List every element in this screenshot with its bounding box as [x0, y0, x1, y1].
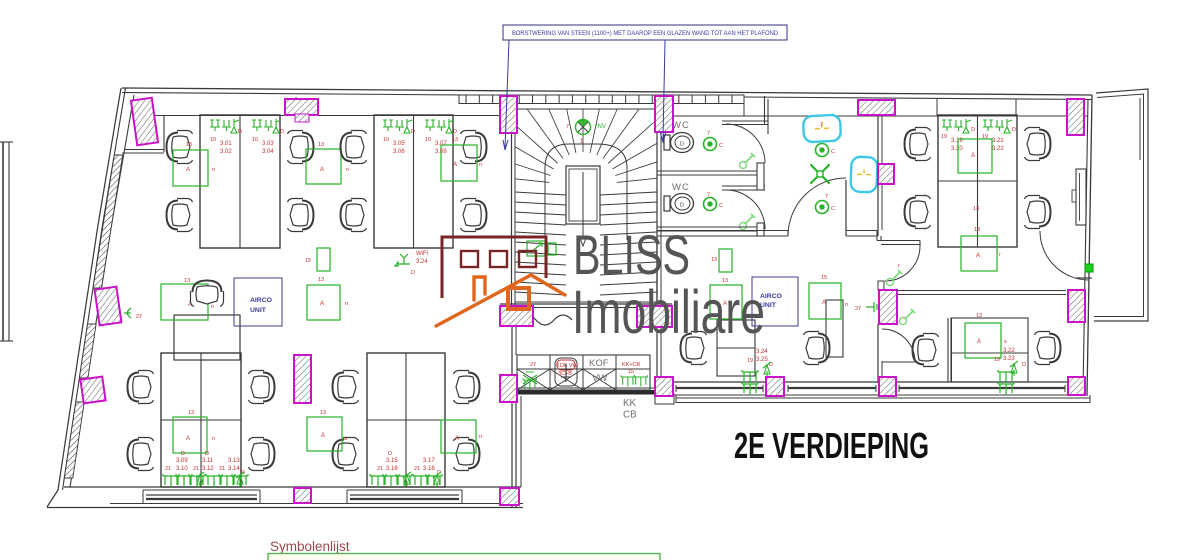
- svg-text:3.14: 3.14: [228, 466, 240, 472]
- svg-text:3.06: 3.06: [393, 149, 405, 155]
- svg-text:D: D: [411, 270, 415, 276]
- svg-text:7: 7: [707, 192, 710, 198]
- svg-text:Symbolenlijst: Symbolenlijst: [270, 539, 350, 554]
- svg-text:3.24: 3.24: [756, 349, 768, 355]
- svg-text:13: 13: [452, 137, 458, 143]
- svg-text:3.17: 3.17: [423, 458, 435, 464]
- svg-text:19: 19: [747, 358, 753, 364]
- svg-text:3.11: 3.11: [202, 458, 214, 464]
- svg-text:10: 10: [210, 137, 216, 143]
- svg-text:3.07: 3.07: [435, 141, 447, 147]
- svg-text:D: D: [205, 451, 209, 457]
- svg-text:n: n: [212, 436, 215, 442]
- svg-text:KOF VW: KOF VW: [556, 363, 579, 369]
- svg-text:3.25: 3.25: [756, 357, 768, 363]
- svg-text:3.01: 3.01: [220, 141, 232, 147]
- svg-text:BORSTWERING VAN STEEN (1100+): BORSTWERING VAN STEEN (1100+) MET DAAROP…: [512, 30, 778, 37]
- svg-text:KK: KK: [623, 398, 637, 409]
- svg-text:D: D: [680, 142, 684, 148]
- svg-text:3.21: 3.21: [992, 138, 1004, 144]
- svg-text:7: 7: [825, 194, 828, 200]
- svg-text:3.18: 3.18: [423, 466, 435, 472]
- svg-text:WiFi: WiFi: [416, 251, 428, 257]
- svg-text:r: r: [999, 252, 1001, 258]
- svg-text:A: A: [977, 339, 981, 345]
- svg-text:D: D: [453, 129, 457, 135]
- svg-text:A: A: [320, 301, 324, 307]
- svg-text:10: 10: [252, 137, 258, 143]
- svg-text:7: 7: [707, 131, 710, 137]
- svg-text:VW: VW: [592, 373, 607, 384]
- svg-text:n: n: [212, 167, 215, 173]
- svg-text:r: r: [898, 263, 900, 269]
- svg-text:D: D: [238, 129, 242, 135]
- svg-text:7: 7: [566, 124, 569, 130]
- svg-text:A: A: [321, 433, 325, 439]
- svg-text:n: n: [479, 434, 482, 440]
- svg-text:21: 21: [377, 466, 383, 472]
- svg-text:AIRCO: AIRCO: [250, 297, 272, 304]
- svg-text:A: A: [186, 167, 190, 173]
- svg-text:15: 15: [821, 275, 827, 281]
- svg-text:D: D: [1012, 127, 1016, 133]
- svg-text:D: D: [971, 127, 975, 133]
- svg-text:D: D: [1022, 362, 1026, 368]
- svg-text:2E VERDIEPING: 2E VERDIEPING: [734, 425, 929, 466]
- svg-text:D: D: [280, 129, 284, 135]
- svg-text:13: 13: [188, 410, 194, 416]
- svg-text:19: 19: [941, 134, 947, 140]
- svg-text:7: 7: [820, 122, 823, 128]
- svg-text:n: n: [211, 304, 214, 310]
- svg-text:3.12: 3.12: [202, 466, 214, 472]
- svg-text:n: n: [479, 162, 482, 168]
- svg-text:3C+B: 3C+B: [558, 371, 572, 377]
- svg-text:13: 13: [974, 227, 980, 233]
- svg-text:21: 21: [414, 466, 420, 472]
- svg-text:15: 15: [305, 258, 311, 264]
- svg-text:13: 13: [318, 277, 324, 283]
- svg-text:A: A: [822, 300, 826, 306]
- svg-text:KOF: KOF: [589, 358, 609, 369]
- svg-text:21: 21: [219, 466, 225, 472]
- svg-text:WC: WC: [672, 182, 690, 193]
- svg-text:19: 19: [994, 357, 1000, 363]
- svg-text:13: 13: [711, 257, 717, 263]
- svg-text:3.03: 3.03: [262, 141, 274, 147]
- svg-text:21: 21: [193, 466, 199, 472]
- svg-text:n: n: [845, 302, 848, 308]
- svg-text:D: D: [680, 203, 684, 209]
- svg-text:A: A: [971, 153, 975, 159]
- svg-text:n: n: [345, 301, 348, 307]
- svg-text:3.22: 3.22: [992, 146, 1004, 152]
- svg-text:UNIT: UNIT: [250, 307, 267, 314]
- svg-text:D: D: [181, 451, 185, 457]
- svg-text:A: A: [186, 436, 190, 442]
- svg-text:3.16: 3.16: [386, 466, 398, 472]
- svg-text:3.24: 3.24: [416, 259, 428, 265]
- svg-text:BLISS: BLISS: [573, 223, 690, 286]
- svg-text:13: 13: [320, 410, 326, 416]
- svg-text:3.09: 3.09: [176, 458, 188, 464]
- svg-text:WC: WC: [672, 120, 690, 131]
- svg-text:21: 21: [165, 466, 171, 472]
- svg-text:A: A: [976, 253, 980, 259]
- svg-text:n: n: [346, 167, 349, 173]
- svg-text:KK+CB: KK+CB: [622, 362, 641, 368]
- svg-text:15: 15: [628, 369, 634, 375]
- svg-text:3.05: 3.05: [393, 141, 405, 147]
- svg-text:C: C: [719, 203, 723, 209]
- svg-text:3.02: 3.02: [220, 149, 232, 155]
- svg-text:D: D: [388, 451, 392, 457]
- svg-text:27: 27: [136, 314, 142, 320]
- svg-text:A: A: [320, 167, 324, 173]
- svg-text:3.10: 3.10: [176, 466, 188, 472]
- svg-text:C: C: [719, 143, 723, 149]
- svg-text:Imobiliare: Imobiliare: [572, 278, 765, 346]
- svg-text:3.20: 3.20: [951, 146, 963, 152]
- svg-text:s: s: [1004, 339, 1007, 345]
- svg-text:CB: CB: [623, 410, 637, 421]
- svg-text:3.23: 3.23: [1003, 356, 1015, 362]
- svg-text:13: 13: [318, 142, 324, 148]
- svg-text:3.22: 3.22: [1003, 348, 1015, 354]
- svg-text:C: C: [831, 149, 835, 155]
- svg-text:10: 10: [425, 137, 431, 143]
- svg-text:+NV: +NV: [594, 124, 606, 130]
- svg-text:13: 13: [976, 313, 982, 319]
- svg-text:13: 13: [184, 278, 190, 284]
- svg-text:27: 27: [530, 362, 536, 368]
- svg-text:10: 10: [383, 137, 389, 143]
- svg-text:27: 27: [855, 306, 861, 312]
- svg-text:3.08: 3.08: [435, 149, 447, 155]
- svg-text:A: A: [455, 436, 459, 442]
- svg-text:3.13: 3.13: [228, 458, 240, 464]
- svg-text:3.04: 3.04: [262, 149, 274, 155]
- svg-text:3.15: 3.15: [386, 458, 398, 464]
- svg-text:C: C: [831, 206, 835, 212]
- svg-text:A: A: [453, 162, 457, 168]
- svg-text:13: 13: [973, 206, 979, 212]
- svg-text:D: D: [411, 129, 415, 135]
- svg-text:13: 13: [186, 142, 192, 148]
